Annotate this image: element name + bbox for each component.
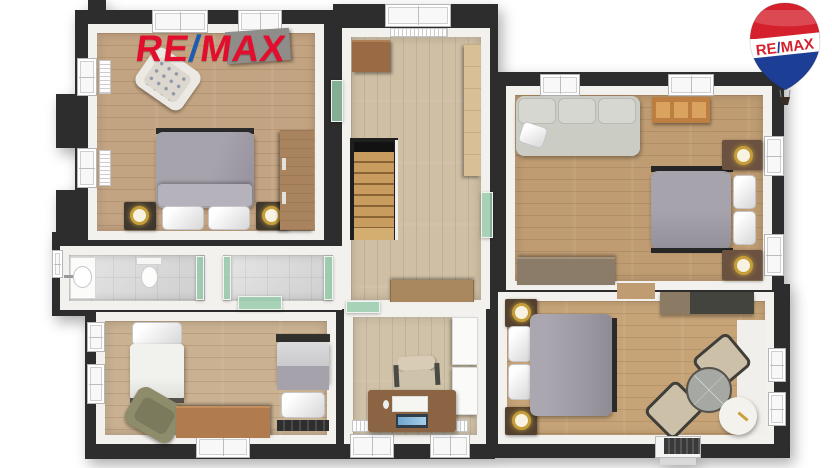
bed-duvet	[651, 171, 731, 249]
mouse	[383, 400, 389, 409]
stair-treads	[354, 152, 394, 228]
pillow	[733, 211, 756, 245]
wordmark-re: RE	[133, 28, 192, 69]
wood-wardrobe	[280, 130, 314, 230]
paper	[392, 396, 428, 412]
window	[52, 250, 63, 278]
side-table-leg	[737, 411, 748, 421]
window	[196, 436, 250, 458]
toilet-tank	[136, 257, 162, 265]
washbasin	[73, 266, 92, 288]
glass-door	[223, 256, 231, 300]
window	[668, 74, 714, 96]
media-cabinet	[652, 97, 710, 123]
wordmark-max: MAX	[198, 28, 289, 69]
wall-pillar	[56, 190, 76, 240]
lamp	[734, 146, 753, 165]
glass-door	[324, 256, 333, 300]
pillow	[508, 326, 532, 362]
wardrobe-handle	[282, 192, 286, 204]
floorplan-render: RE/MAX RE/MAX	[0, 0, 832, 468]
door-opening	[617, 283, 655, 299]
sideboard	[517, 257, 615, 285]
pillow	[162, 206, 204, 230]
cabinet-panel	[692, 102, 706, 118]
faucet	[64, 275, 73, 278]
lamp	[512, 411, 531, 430]
lamp	[262, 206, 281, 225]
window	[540, 74, 580, 96]
glass-door	[331, 80, 343, 122]
balloon-basket	[780, 97, 790, 105]
door-mat	[664, 438, 700, 454]
radiator	[99, 60, 111, 94]
stair-bottom-step	[354, 228, 394, 240]
console-wood-part	[660, 292, 690, 314]
glass-door	[238, 296, 282, 310]
stair-landing	[354, 142, 394, 152]
sofa-cushion	[558, 98, 596, 124]
window	[764, 136, 784, 176]
floorplan	[0, 0, 832, 468]
shower-glass-panel	[196, 256, 204, 300]
wood-chest	[176, 406, 270, 438]
window	[77, 148, 97, 188]
throw-pillow	[517, 121, 549, 150]
radiator	[99, 150, 111, 186]
laptop	[396, 414, 428, 428]
lamp	[512, 303, 531, 322]
window	[87, 322, 105, 352]
lamp	[130, 206, 149, 225]
wall-pillar	[56, 94, 76, 148]
staircase	[350, 138, 398, 240]
pillow	[132, 322, 182, 346]
lamp	[734, 256, 753, 275]
window	[768, 348, 786, 382]
window	[768, 392, 786, 426]
white-cabinet	[452, 317, 478, 365]
bed-footboard	[277, 420, 329, 431]
sofa-cushion	[598, 98, 636, 124]
remax-wordmark: RE/MAX	[133, 28, 289, 70]
armchair-seat	[132, 396, 176, 437]
wardrobe-handle	[282, 158, 286, 170]
glass-door	[346, 301, 380, 313]
bed-frame	[612, 318, 617, 412]
chair-armrest	[393, 365, 399, 387]
window	[764, 234, 784, 276]
entry-step	[660, 458, 696, 465]
bed-frame	[651, 248, 733, 253]
bed-blanket	[277, 366, 329, 390]
bed-duvet-fold	[158, 184, 252, 206]
chair-back	[397, 355, 436, 371]
pillow	[208, 206, 250, 230]
pillow	[281, 392, 325, 418]
window	[87, 364, 105, 404]
sofa-cushion	[518, 98, 556, 124]
radiator	[390, 28, 448, 37]
sideboard	[390, 280, 474, 302]
small-cabinet	[352, 40, 390, 72]
bed-duvet	[530, 314, 612, 416]
pillow	[508, 364, 532, 400]
glass-door	[481, 192, 493, 238]
desk	[368, 390, 456, 432]
cabinet-panel	[674, 102, 688, 118]
window	[77, 58, 97, 96]
window	[385, 4, 451, 27]
toilet-bowl	[141, 266, 158, 288]
sofa	[516, 96, 640, 156]
laptop-screen	[398, 417, 426, 425]
pillow	[733, 175, 756, 209]
cabinet-panel	[656, 102, 670, 118]
wall-console	[660, 292, 754, 314]
window	[430, 434, 470, 458]
tall-shelf	[464, 44, 481, 176]
wall-pillar	[88, 0, 106, 12]
remax-balloon-logo: RE/MAX	[740, 0, 830, 110]
round-side-table	[719, 397, 757, 435]
window	[350, 434, 394, 458]
bed-headboard	[276, 334, 330, 342]
stair-rail	[395, 140, 398, 240]
